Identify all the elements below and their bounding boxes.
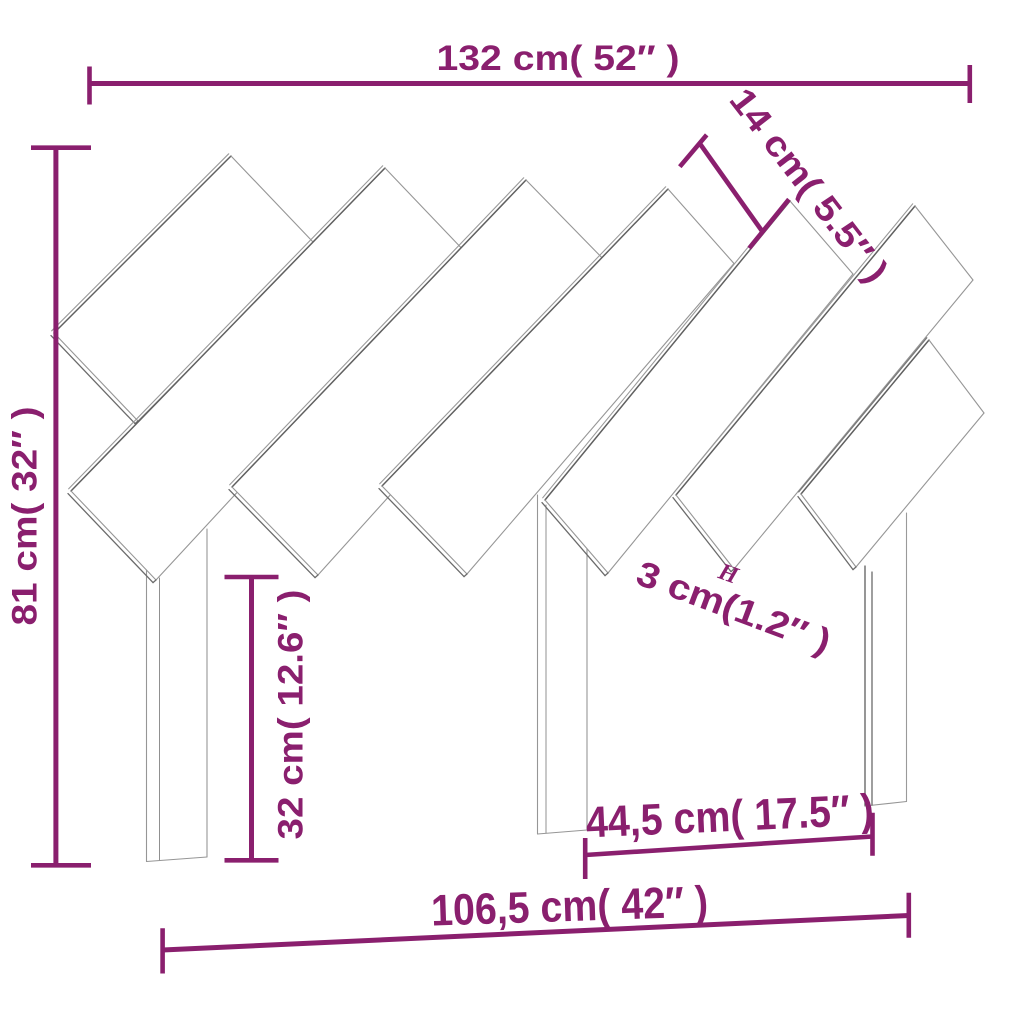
svg-text:106,5 cm( 42″ ): 106,5 cm( 42″ )	[430, 877, 708, 935]
svg-text:81 cm( 32″ ): 81 cm( 32″ )	[5, 407, 45, 626]
svg-text:32 cm( 12.6″ ): 32 cm( 12.6″ )	[271, 590, 311, 840]
svg-text:132 cm( 52″ ): 132 cm( 52″ )	[437, 38, 680, 78]
